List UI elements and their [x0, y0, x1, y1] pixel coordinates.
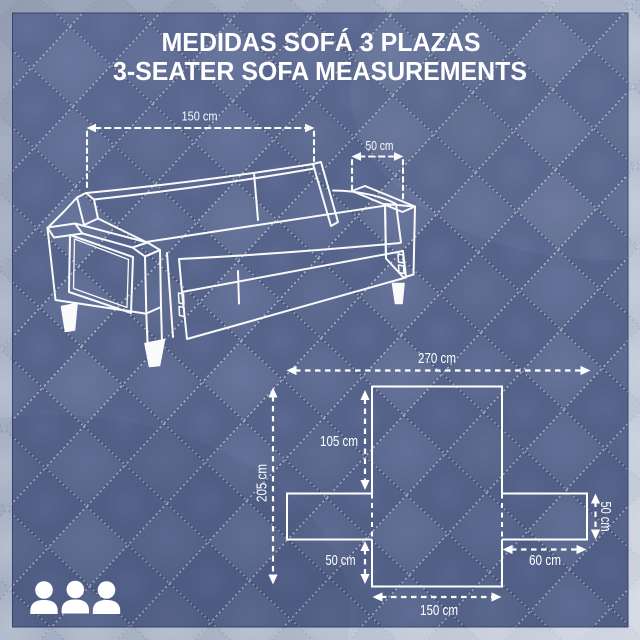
svg-text:3-SEATER SOFA MEASUREMENTS: 3-SEATER SOFA MEASUREMENTS	[113, 56, 527, 86]
svg-text:150 cm: 150 cm	[182, 110, 218, 124]
svg-text:105 cm: 105 cm	[320, 433, 358, 450]
svg-text:150 cm: 150 cm	[420, 602, 458, 619]
svg-text:50 cm: 50 cm	[597, 502, 614, 532]
svg-text:270 cm: 270 cm	[418, 350, 456, 367]
svg-text:60 cm: 60 cm	[529, 552, 561, 569]
svg-text:MEDIDAS SOFÁ 3 PLAZAS: MEDIDAS SOFÁ 3 PLAZAS	[162, 27, 481, 57]
svg-text:50 cm: 50 cm	[326, 552, 356, 569]
svg-text:50 cm: 50 cm	[366, 139, 394, 153]
svg-text:205 cm: 205 cm	[254, 464, 271, 502]
